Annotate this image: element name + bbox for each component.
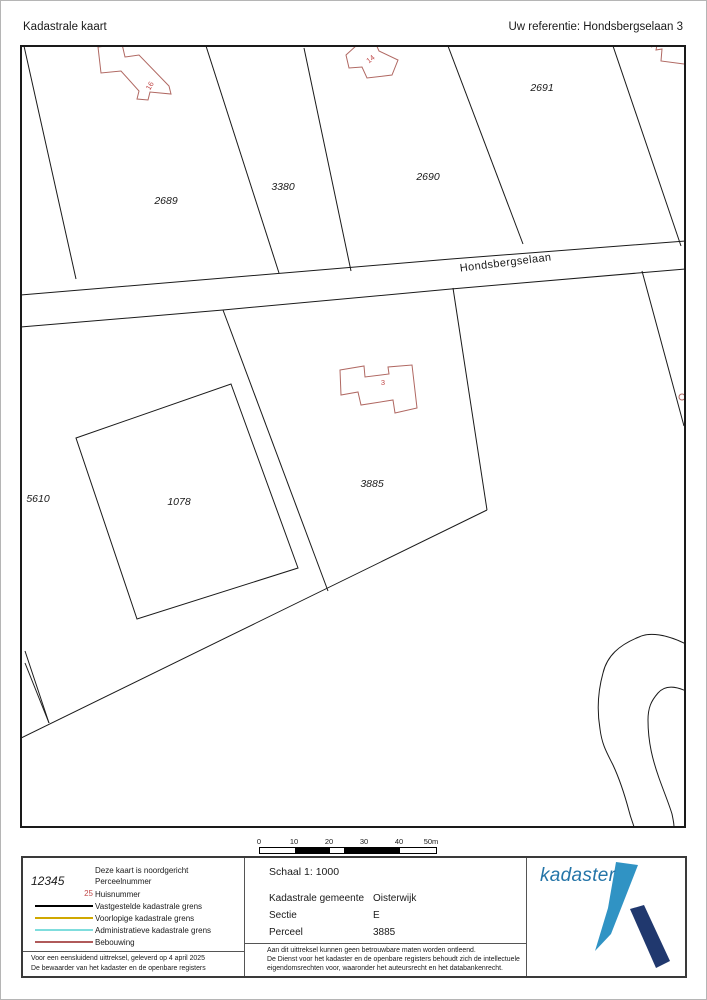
road-edge-north <box>21 241 685 295</box>
legend-line-red <box>35 941 93 943</box>
detail-value: 3885 <box>373 927 395 938</box>
detail-value: Oisterwijk <box>373 893 416 904</box>
logo-dark-stroke <box>630 905 670 968</box>
scale-tick: 40 <box>395 837 403 846</box>
curved-road-inner <box>648 687 686 827</box>
parcel-label-2689: 2689 <box>153 195 178 207</box>
legend-house-sample: 25 <box>31 889 93 898</box>
detail-label: Perceel <box>269 927 303 938</box>
scale-tick: 0 <box>257 837 261 846</box>
disclaimer-line-2: De Dienst voor het kadaster en de openba… <box>267 956 520 963</box>
buildings <box>98 42 685 413</box>
legend-parcel-sample: 12345 <box>31 874 64 888</box>
parcel-label-3380: 3380 <box>271 181 295 193</box>
extract-details: Schaal 1: 1000 Kadastrale gemeente Oiste… <box>244 858 526 980</box>
detail-value: E <box>373 910 380 921</box>
house-number-14: 14 <box>364 53 376 65</box>
scale-tick: 10 <box>290 837 298 846</box>
parcel-label-5610: 5610 <box>26 493 50 505</box>
divider <box>23 951 244 952</box>
legend-item-label: Bebouwing <box>95 938 135 947</box>
scale-tick: 50m <box>424 837 439 846</box>
kadaster-logo: kadaster <box>526 858 687 976</box>
parcel-label-1078: 1078 <box>167 496 191 508</box>
disclaimer-line-1: Aan dit uittreksel kunnen geen betrouwba… <box>267 947 476 954</box>
road-edge-south <box>21 269 685 327</box>
legend-line-yellow <box>35 917 93 919</box>
parcel-label-2691: 2691 <box>529 82 553 94</box>
legend-house-label: Huisnummer <box>95 890 140 899</box>
legend-item-label: Vastgestelde kadastrale grens <box>95 902 202 911</box>
building-16-outline <box>98 44 171 100</box>
map-labels: Hondsbergselaan 2689 3380 2690 2691 3885… <box>26 53 553 508</box>
building-3-outline <box>340 365 417 413</box>
scale-bar-segments <box>259 847 437 854</box>
legend-north-note: Deze kaart is noordgericht <box>95 866 188 875</box>
parcel-label-3885: 3885 <box>360 478 384 490</box>
parcel-label-2690: 2690 <box>415 171 440 183</box>
legend-item-label: Administratieve kadastrale grens <box>95 926 211 935</box>
certify-line-2: De bewaarder van het kadaster en de open… <box>31 965 206 972</box>
cadastral-extract-page: Kadastrale kaart Uw referentie: Hondsber… <box>0 0 707 1000</box>
scale-label: Schaal 1: 1000 <box>269 866 339 878</box>
curved-road-outer <box>598 634 686 827</box>
certify-line-1: Voor een eensluidend uittreksel, gelever… <box>31 955 205 962</box>
parcel-boundaries <box>21 46 686 827</box>
legend-parcel-label: Perceelnummer <box>95 877 151 886</box>
legend-line-black <box>35 905 93 907</box>
map-frame <box>21 46 685 827</box>
scale-tick: 20 <box>325 837 333 846</box>
legend-item-label: Voorlopige kadastrale grens <box>95 914 194 923</box>
house-number-3: 3 <box>381 378 385 387</box>
footer-info-box: Deze kaart is noordgericht 12345 Perceel… <box>21 856 687 978</box>
house-number-16: 16 <box>144 80 156 92</box>
scale-tick: 30 <box>360 837 368 846</box>
legend: Deze kaart is noordgericht 12345 Perceel… <box>23 858 244 951</box>
building-edge-fragment <box>651 45 684 64</box>
legend-line-cyan <box>35 929 93 931</box>
detail-label: Kadastrale gemeente <box>269 893 364 904</box>
detail-label: Sectie <box>269 910 297 921</box>
kadaster-wordmark: kadaster <box>540 865 615 887</box>
disclaimer-line-3: eigendomsrechten voor, waaronder het aut… <box>267 965 503 972</box>
scale-bar: 0 10 20 30 40 50m <box>259 837 436 857</box>
